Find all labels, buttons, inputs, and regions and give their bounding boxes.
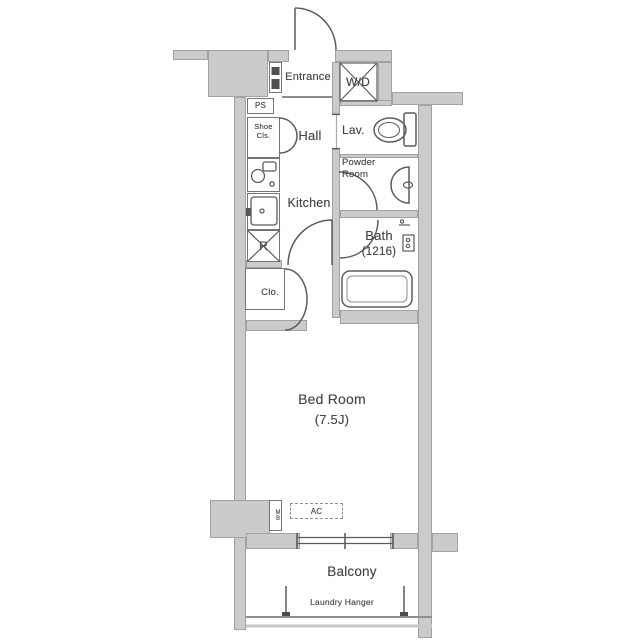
kitchen-label: Kitchen — [281, 196, 337, 210]
bedroom-label: Bed Room — [262, 391, 402, 407]
balcony-window-icon — [297, 533, 393, 549]
bath-size-label: (1216) — [340, 246, 418, 258]
balcony-edge-lines — [246, 617, 432, 626]
kitchen-door-swing-icon — [288, 220, 332, 265]
washer-dryer-label: W/D — [336, 75, 380, 89]
refrigerator-label: R — [247, 239, 280, 253]
bathtub-icon — [342, 271, 412, 307]
kitchen-sink-icon — [252, 162, 277, 186]
closet-double-doors-icon — [285, 269, 307, 330]
laundry-hanger-label: Laundry Hanger — [262, 597, 422, 607]
toilet-icon — [374, 113, 416, 146]
kitchen-stove-icon — [246, 197, 277, 225]
entrance-cabinet-icon — [272, 67, 280, 89]
powder-room-label: Powder Room — [342, 157, 384, 181]
lavatory-sliding-door-icon — [332, 115, 340, 149]
powder-sink-icon — [391, 167, 413, 203]
meter-box-label: MB — [271, 503, 281, 529]
fixtures-overlay — [0, 0, 640, 640]
lavatory-label: Lav. — [342, 123, 376, 137]
hall-label: Hall — [287, 128, 333, 143]
entrance-door-swing-icon — [295, 8, 336, 50]
floor-plan: Entrance W/D PS Shoe Cls. Hall Lav. Powd… — [0, 0, 640, 640]
shoe-closet-label: Shoe Cls. — [247, 122, 280, 140]
bedroom-size-label: (7.5J) — [262, 412, 402, 427]
balcony-label: Balcony — [272, 564, 432, 579]
ac-label: AC — [290, 507, 343, 516]
entrance-label: Entrance — [281, 71, 335, 83]
pipe-space-label: PS — [247, 101, 274, 110]
bath-label: Bath — [340, 228, 418, 243]
closet-label: Clo. — [250, 287, 290, 298]
